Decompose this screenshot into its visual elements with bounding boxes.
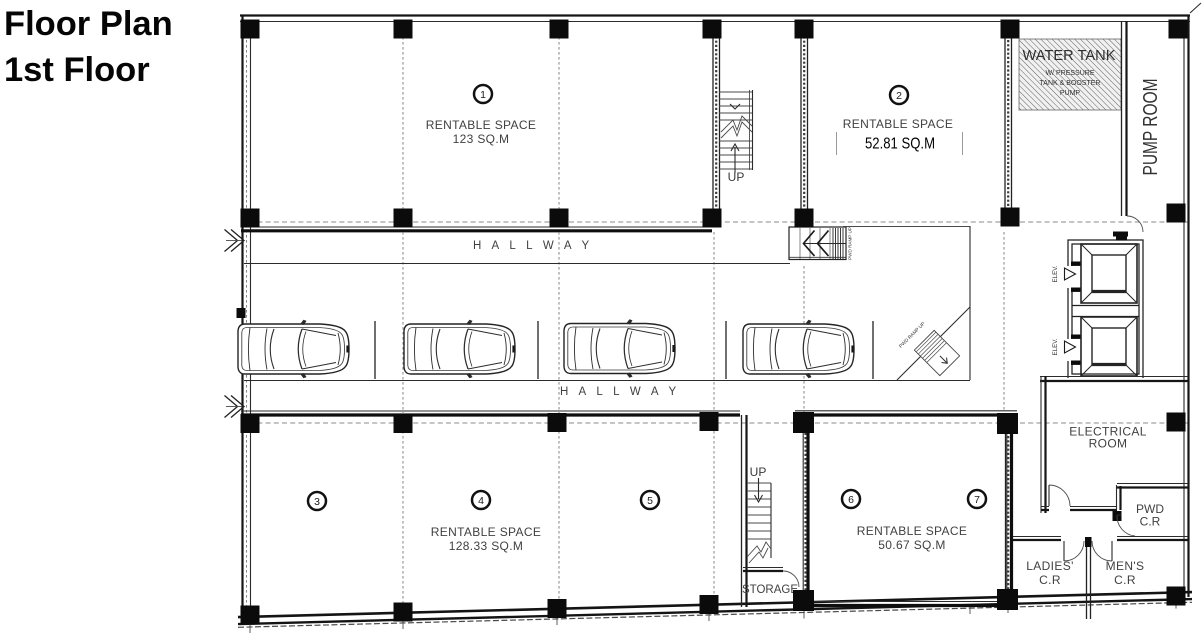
svg-text:ELEV.: ELEV. [1052,265,1059,282]
svg-text:WATER TANK: WATER TANK [1023,47,1116,64]
svg-text:C.R: C.R [1140,515,1161,529]
svg-text:W/ PRESSURE: W/ PRESSURE [1045,70,1094,77]
svg-text:UP: UP [750,465,767,479]
svg-text:128.33 SQ.M: 128.33 SQ.M [449,539,524,553]
svg-text:5: 5 [647,495,653,507]
svg-text:3: 3 [314,496,320,508]
svg-text:H A L L W A Y: H A L L W A Y [473,240,593,252]
svg-text:52.81 SQ.M: 52.81 SQ.M [865,136,935,153]
svg-text:1st Floor: 1st Floor [4,51,150,89]
svg-text:4: 4 [478,495,484,507]
svg-text:PWD RAMP UP: PWD RAMP UP [848,227,853,260]
svg-text:2: 2 [896,90,902,102]
svg-text:PUMP ROOM: PUMP ROOM [1140,79,1162,176]
svg-text:RENTABLE SPACE: RENTABLE SPACE [843,117,954,131]
svg-text:6: 6 [848,494,854,506]
svg-text:123 SQ.M: 123 SQ.M [453,132,510,146]
svg-text:Floor Plan: Floor Plan [4,5,173,43]
svg-text:STORAGE: STORAGE [742,582,798,596]
svg-text:PUMP: PUMP [1060,90,1081,97]
svg-text:RENTABLE SPACE: RENTABLE SPACE [431,525,542,539]
svg-text:UP: UP [728,170,745,184]
svg-text:7: 7 [974,494,980,506]
svg-text:RENTABLE SPACE: RENTABLE SPACE [426,118,537,132]
svg-text:MEN'S: MEN'S [1106,559,1145,573]
svg-text:C.R: C.R [1039,573,1061,587]
svg-text:TANK & BOOSTER: TANK & BOOSTER [1040,80,1101,87]
svg-text:LADIES': LADIES' [1026,559,1073,573]
svg-text:1: 1 [480,89,486,101]
svg-text:RENTABLE SPACE: RENTABLE SPACE [857,524,968,538]
svg-text:H A L L W A Y: H A L L W A Y [560,386,680,398]
svg-text:C.R: C.R [1114,573,1136,587]
svg-text:ELEV.: ELEV. [1052,338,1059,355]
svg-text:ROOM: ROOM [1089,437,1128,451]
svg-text:50.67 SQ.M: 50.67 SQ.M [878,538,946,552]
